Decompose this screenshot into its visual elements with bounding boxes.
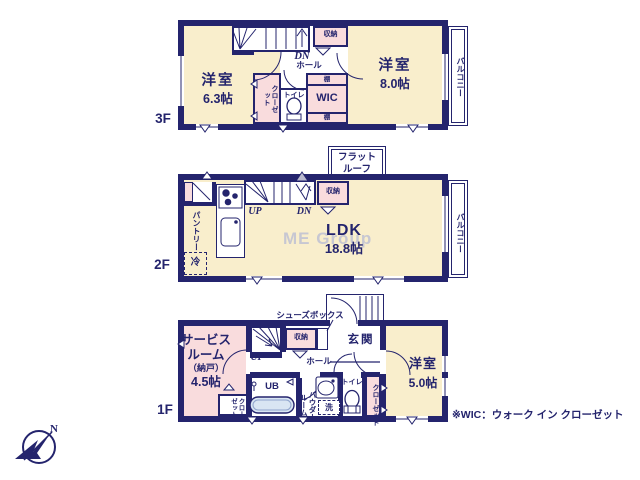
f2-flat-roof-label: フラットルーフ [336,152,378,177]
f1-entrance-door-gap [330,320,358,326]
f3-wall-under-stairs [232,50,254,55]
floor-label-1f: 1F [152,402,178,418]
f2-fridge-label: 冷 [184,258,207,269]
f1-service-line1: サービス [176,333,236,347]
f1-up-label: UP [245,352,269,364]
window [178,56,184,106]
f1-entrance-label: 玄関 [337,334,385,347]
f3-room2-name: 洋室 [365,58,425,75]
window [396,124,428,130]
compass-icon [15,431,55,463]
f1-ub-label: UB [254,382,290,393]
f1-wall [380,374,386,416]
f3-shelf-top-label: 棚 [306,76,348,83]
f1-shoe-box [317,328,328,350]
f3-storage-label: 収納 [313,31,348,39]
f1-storage-label: 収納 [285,334,317,342]
f3-room2-size: 8.0帖 [365,77,425,91]
window [246,276,282,282]
f2-pantry-label: パントリー [188,207,201,255]
f3-toilet-label: トイレ [281,92,307,100]
f1-laundry-label: 洗 [318,403,340,412]
floor-label-2f: 2F [149,257,175,273]
floor-plan: 3F 洋室 6.3帖 洋室 8.0帖 クローゼット トイレ WIC 棚 棚 収納… [0,0,640,480]
f3-shelf-bottom-label: 棚 [306,114,348,121]
f1-shoes-box-label: シューズボックス [266,311,354,321]
f2-dn-label: DN [292,206,316,218]
f2-kitchen-counter [216,184,245,258]
f1-hall-label: ホール [297,357,341,367]
f2-stairs [244,180,316,205]
f2-up-label: UP [243,206,267,218]
window [196,124,218,130]
f2-storage-label: 収納 [317,188,349,196]
f2-ldk-size: 18.8帖 [304,242,384,257]
f2-balcony-label: バルコニー [451,204,465,262]
f3-wic-label: WIC [306,92,348,105]
f3-room1-name: 洋室 [186,73,250,90]
f1-service-size: 4.5帖 [176,375,236,389]
f1-room3-name: 洋室 [398,357,448,372]
window [396,416,428,422]
f3-room1-size: 6.3帖 [186,92,250,106]
wic-footnote: ※WIC：ウォーク イン クローゼット [452,409,640,421]
f3-closet-label: クローゼット [258,85,278,113]
f2-ldk-name: LDK [304,222,384,240]
f3-hall-label: ホール [289,61,329,71]
f3-balcony-label: バルコニー [451,47,465,107]
f2-pantry-shelf [184,182,193,202]
window [354,276,404,282]
f1-powder-room-label: パウダールーム [298,389,316,422]
f1-room3-size: 5.0帖 [398,377,448,391]
f1-wall [250,372,300,378]
compass-n-label: N [46,423,62,436]
f1-toilet-label: トイレ [340,379,364,387]
f2-pantry-wall-b [184,202,214,206]
f1-stairs [250,326,282,354]
f1-closet-left-label: クローゼット [222,396,244,420]
f1-service-line3: （納戸） [176,363,236,373]
f3-stairs [232,26,310,52]
floor-label-3f: 3F [150,111,176,127]
f1-closet-right-label: クローゼット [368,380,379,430]
f1-service-line2: ルーム [176,348,236,362]
